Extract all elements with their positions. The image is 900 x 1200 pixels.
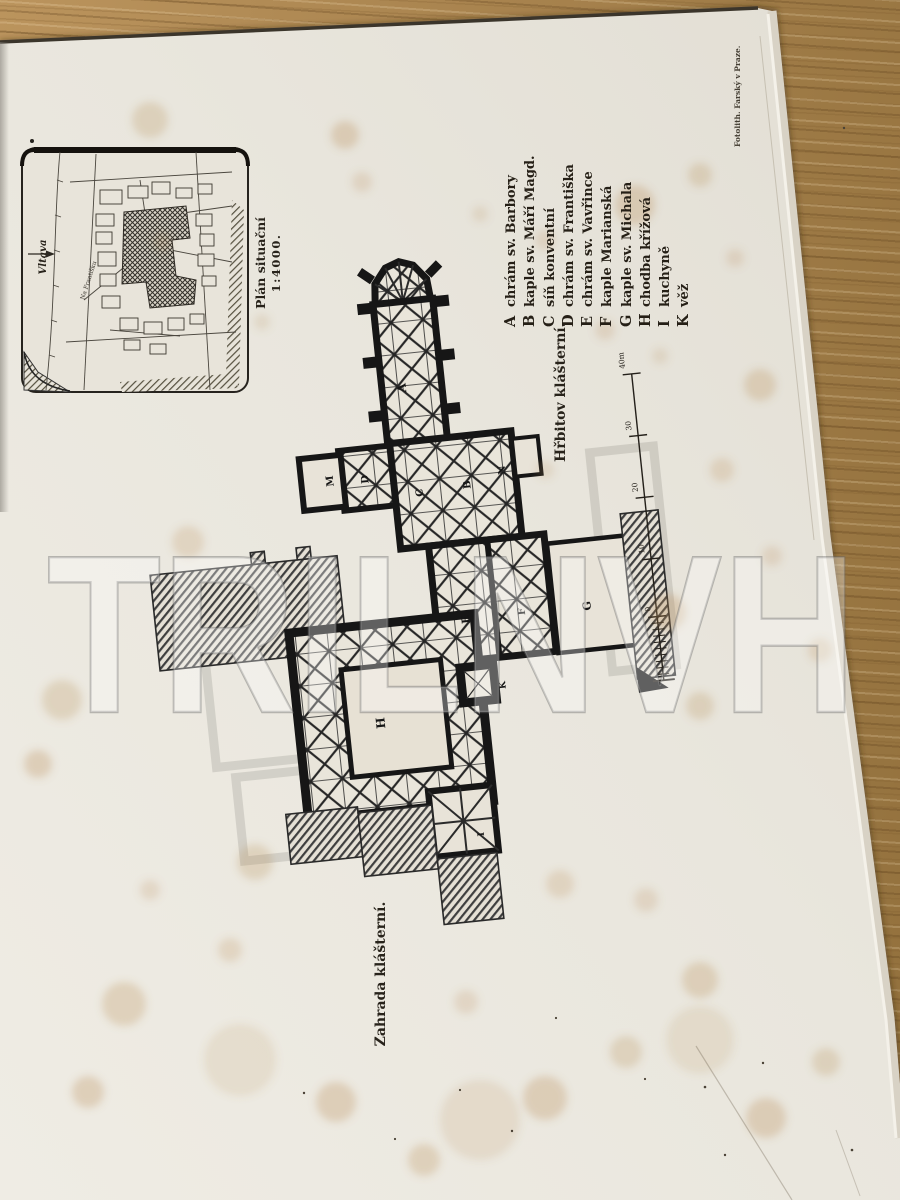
plan-legend: Achrám sv. Barbory Bkaple sv. Máří Magd.… [504,135,692,327]
river-label: Vltava [38,229,50,285]
map-convent-wing [140,250,162,268]
legend-label: síň konventní [544,208,557,307]
watermark-text: TRILNVH [47,508,857,760]
legend-label: chrám sv. Františka [563,164,576,307]
printer-imprint: Fotolith. Farský v Praze. [733,51,743,147]
plan-letter: D [360,474,372,484]
legend-row: Achrám sv. Barbory [504,135,519,327]
plan-letter: N [497,465,509,475]
legend-key: F [600,307,615,327]
inset-map: Na Františku [22,148,248,392]
kitchen [428,785,499,857]
legend-label: věž [678,284,691,307]
garden-label: Zahrada klášterní. [373,901,389,1047]
legend-row: Echrám sv. Vavřince [581,135,596,327]
legend-key: B [523,307,538,327]
legend-row: Bkaple sv. Máří Magd. [523,135,538,327]
legend-label: kaple sv. Michala [621,182,634,307]
inset-map-title: Plán situační [253,208,269,318]
legend-row: Kvěž [677,135,692,327]
legend-key: I [658,307,673,327]
legend-row: Hchodba křížová [639,135,654,327]
inset-map-scale: 1:4000. [269,208,284,318]
cemetery-label: Hřbitov klášterní. [553,330,569,462]
plan-letter: B [462,480,474,490]
legend-row: Fkaple Marianská [600,135,615,327]
south-annex [358,805,438,876]
south-annex [286,807,363,864]
ink-dot [30,139,34,143]
legend-row: Dchrám sv. Františka [562,135,577,327]
legend-label: chrám sv. Barbory [505,175,518,307]
scale-tick-label: 20 [630,482,640,493]
legend-label: kaple sv. Máří Magd. [524,155,537,307]
left-page-curve [0,42,9,512]
legend-key: E [581,307,596,327]
plan-letter: C [415,488,427,497]
south-annex [437,853,504,925]
legend-row: Csíň konventní [543,135,558,327]
photo-of-plan: Na Františku [0,0,900,1200]
inset-map-caption: Plán situační 1:4000. [253,208,287,318]
scale-tick-label: 30 [624,420,634,431]
document-scene: Na Františku [0,0,900,1200]
plan-letter: M [325,475,337,487]
legend-key: H [639,307,654,327]
porch-m [299,455,346,511]
scale-tick-label: 40m [616,352,627,370]
legend-row: Gkaple sv. Michala [620,135,635,327]
legend-row: Ikuchyně [658,135,673,327]
legend-label: chrám sv. Vavřince [582,171,595,307]
legend-label: kuchyně [659,246,672,307]
legend-key: K [677,307,692,327]
legend-label: chodba křížová [640,197,653,307]
legend-key: G [620,307,635,327]
legend-key: A [504,307,519,327]
legend-label: kaple Marianská [601,186,614,307]
